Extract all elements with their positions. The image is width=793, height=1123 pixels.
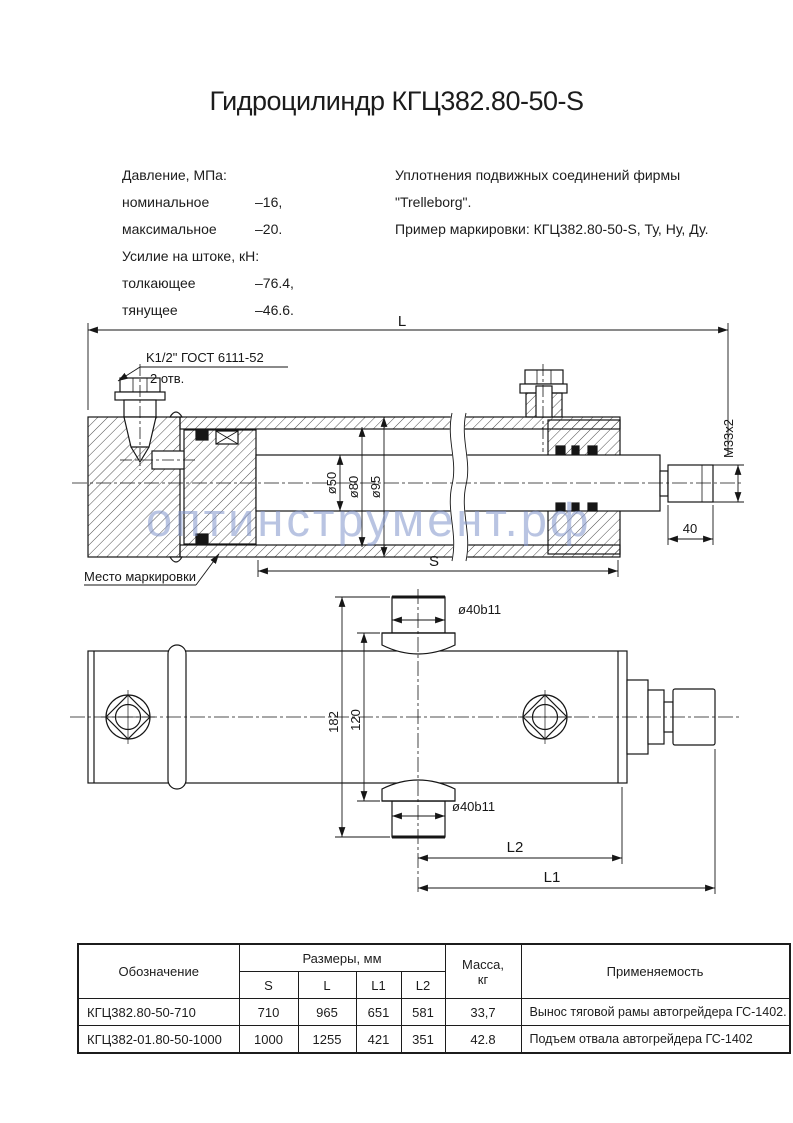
dim-label-L: L xyxy=(398,315,406,330)
dim-40-label: 40 xyxy=(683,521,697,536)
force-heading: Усилие на штоке, кН: xyxy=(122,243,382,270)
dim-120-label: 120 xyxy=(348,709,363,731)
port-holes-count-label: 2 отв. xyxy=(150,371,184,386)
trunnion-pin-bottom xyxy=(382,780,455,837)
seal-specs: Уплотнения подвижных соединений фирмы "T… xyxy=(395,162,725,243)
spec-label: максимальное xyxy=(122,221,217,237)
cylinder-drawing: L K1/2" ГОСТ 6111-52 2 отв. ø50 ø80 ø95 … xyxy=(0,315,793,915)
pressure-heading: Давление, МПа: xyxy=(122,162,382,189)
cell-l2: 581 xyxy=(401,999,445,1026)
page-title: Гидроцилиндр КГЦ382.80-50-S xyxy=(0,86,793,117)
port-thread-label: K1/2" ГОСТ 6111-52 xyxy=(146,350,264,365)
col-header-designation: Обозначение xyxy=(78,944,239,999)
col-header-sizes: Размеры, мм xyxy=(239,944,445,972)
dim-S-label: S xyxy=(429,553,439,570)
marking-place-label: Место маркировки xyxy=(84,569,196,584)
watermark-text: оптинструмент.рф xyxy=(146,492,592,547)
cell-l1: 651 xyxy=(356,999,401,1026)
cell-mass: 42.8 xyxy=(445,1026,521,1054)
spec-label: номинальное xyxy=(122,194,209,210)
dia-50-label: ø50 xyxy=(324,472,339,494)
pin-dia-top-label: ø40b11 xyxy=(458,602,501,617)
cell-application: Подъем отвала автогрейдера ГС-1402 xyxy=(521,1026,790,1054)
side-outline-view xyxy=(70,589,740,893)
spec-value: –16, xyxy=(255,189,282,216)
cell-designation: КГЦ382.80-50-710 xyxy=(78,999,239,1026)
thread-m33-label: М33х2 xyxy=(721,419,736,458)
pressure-specs: Давление, МПа: номинальное –16, максимал… xyxy=(122,162,382,324)
mass-header-line1: Масса, xyxy=(448,957,519,972)
cell-designation: КГЦ382-01.80-50-1000 xyxy=(78,1026,239,1054)
cell-l: 965 xyxy=(298,999,356,1026)
col-header-mass: Масса, кг xyxy=(445,944,521,999)
spec-value: –76.4, xyxy=(255,270,294,297)
cell-s: 1000 xyxy=(239,1026,298,1054)
drawing-sheet: Гидроцилиндр КГЦ382.80-50-S Давление, МП… xyxy=(0,0,793,1123)
seals-line-1: Уплотнения подвижных соединений фирмы xyxy=(395,162,725,189)
spec-value: –20. xyxy=(255,216,282,243)
col-header-l1: L1 xyxy=(356,972,401,999)
table-row: КГЦ382-01.80-50-1000 1000 1255 421 351 4… xyxy=(78,1026,790,1054)
dim-182-label: 182 xyxy=(326,711,341,733)
spec-row-max: максимальное –20. xyxy=(122,216,382,243)
dim-L1-label: L1 xyxy=(544,869,561,886)
pin-dia-bottom-label: ø40b11 xyxy=(452,799,495,814)
spec-label: толкающее xyxy=(122,275,196,291)
cell-l2: 351 xyxy=(401,1026,445,1054)
cell-application: Вынос тяговой рамы автогрейдера ГС-1402. xyxy=(521,999,790,1026)
trunnion-pin-top xyxy=(382,597,455,654)
mass-header-line2: кг xyxy=(448,972,519,987)
seals-line-2: "Trelleborg". xyxy=(395,189,725,216)
col-header-application: Применяемость xyxy=(521,944,790,999)
cell-mass: 33,7 xyxy=(445,999,521,1026)
spec-row-push: толкающее –76.4, xyxy=(122,270,382,297)
cell-s: 710 xyxy=(239,999,298,1026)
cell-l: 1255 xyxy=(298,1026,356,1054)
table-row: КГЦ382.80-50-710 710 965 651 581 33,7 Вы… xyxy=(78,999,790,1026)
col-header-l2: L2 xyxy=(401,972,445,999)
cell-l1: 421 xyxy=(356,1026,401,1054)
parameters-table: Обозначение Размеры, мм Масса, кг Примен… xyxy=(77,943,791,1054)
col-header-s: S xyxy=(239,972,298,999)
spec-row-nominal: номинальное –16, xyxy=(122,189,382,216)
col-header-l: L xyxy=(298,972,356,999)
dim-L2-label: L2 xyxy=(507,839,524,856)
marking-example-line: Пример маркировки: КГЦ382.80-50-S, Ту, Н… xyxy=(395,216,725,243)
